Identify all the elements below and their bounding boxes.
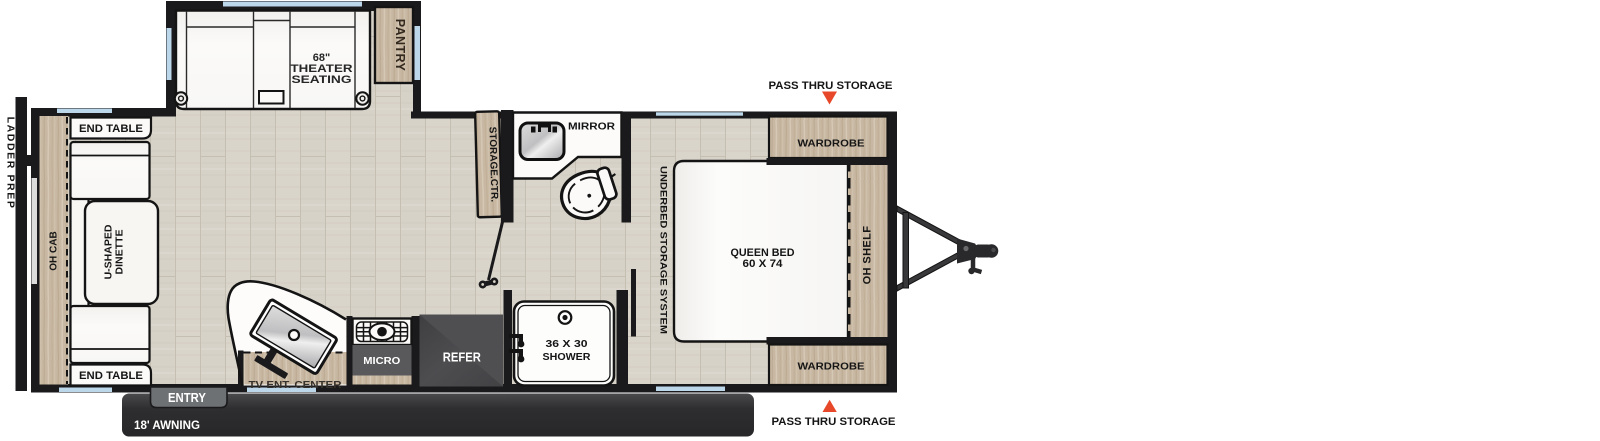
svg-text:MICRO: MICRO — [363, 355, 400, 367]
svg-text:SHOWER: SHOWER — [543, 351, 591, 363]
svg-text:MIRROR: MIRROR — [568, 121, 615, 133]
svg-text:PASS THRU STORAGE: PASS THRU STORAGE — [769, 80, 893, 92]
svg-text:36 X 30: 36 X 30 — [546, 338, 588, 350]
svg-text:STORAGE.CTR.: STORAGE.CTR. — [487, 127, 500, 203]
svg-text:OH CAB: OH CAB — [49, 231, 60, 270]
svg-text:DINETTE: DINETTE — [114, 230, 126, 275]
svg-text:LADDER PREP: LADDER PREP — [5, 117, 17, 210]
svg-text:WARDROBE: WARDROBE — [798, 362, 865, 373]
svg-text:END TABLE: END TABLE — [79, 123, 143, 135]
svg-text:PASS THRU STORAGE: PASS THRU STORAGE — [772, 416, 896, 428]
svg-text:PANTRY: PANTRY — [393, 19, 407, 72]
svg-text:REFER: REFER — [443, 351, 481, 365]
svg-text:OH SHELF: OH SHELF — [862, 226, 874, 285]
svg-text:UNDERBED STORAGE SYSTEM: UNDERBED STORAGE SYSTEM — [658, 166, 669, 334]
svg-text:WARDROBE: WARDROBE — [798, 139, 865, 150]
svg-text:TV ENT. CENTER: TV ENT. CENTER — [249, 379, 342, 391]
svg-text:60 X 74: 60 X 74 — [743, 258, 784, 270]
svg-text:18' AWNING: 18' AWNING — [134, 418, 200, 432]
svg-text:END TABLE: END TABLE — [79, 370, 143, 382]
svg-text:SEATING: SEATING — [292, 74, 352, 86]
svg-text:ENTRY: ENTRY — [168, 391, 207, 405]
